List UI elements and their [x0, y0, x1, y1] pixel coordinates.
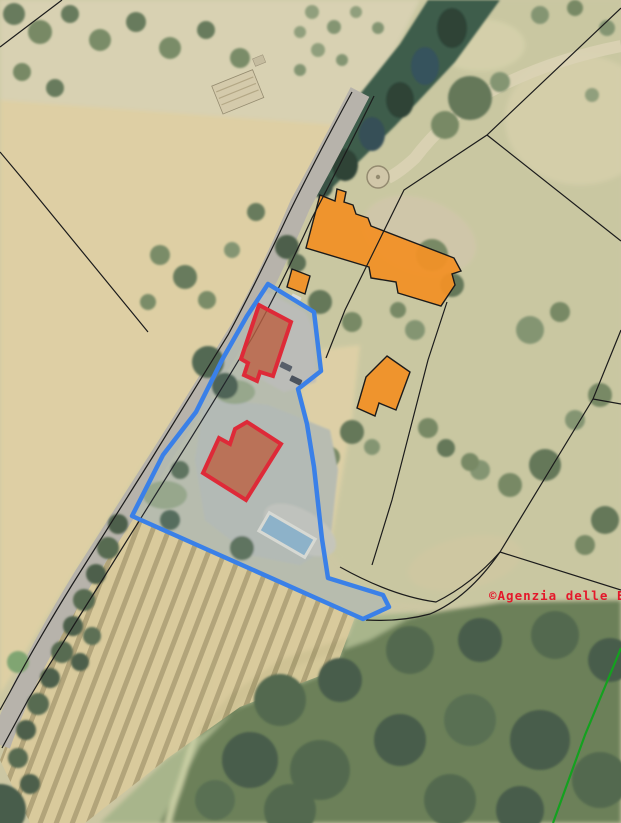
map-canvas[interactable]: ©Agenzia delle En: [0, 0, 621, 823]
watermark: ©Agenzia delle En: [489, 588, 621, 603]
aerial-imagery: [0, 0, 621, 823]
aerial-map-image[interactable]: ©Agenzia delle En: [0, 0, 621, 823]
